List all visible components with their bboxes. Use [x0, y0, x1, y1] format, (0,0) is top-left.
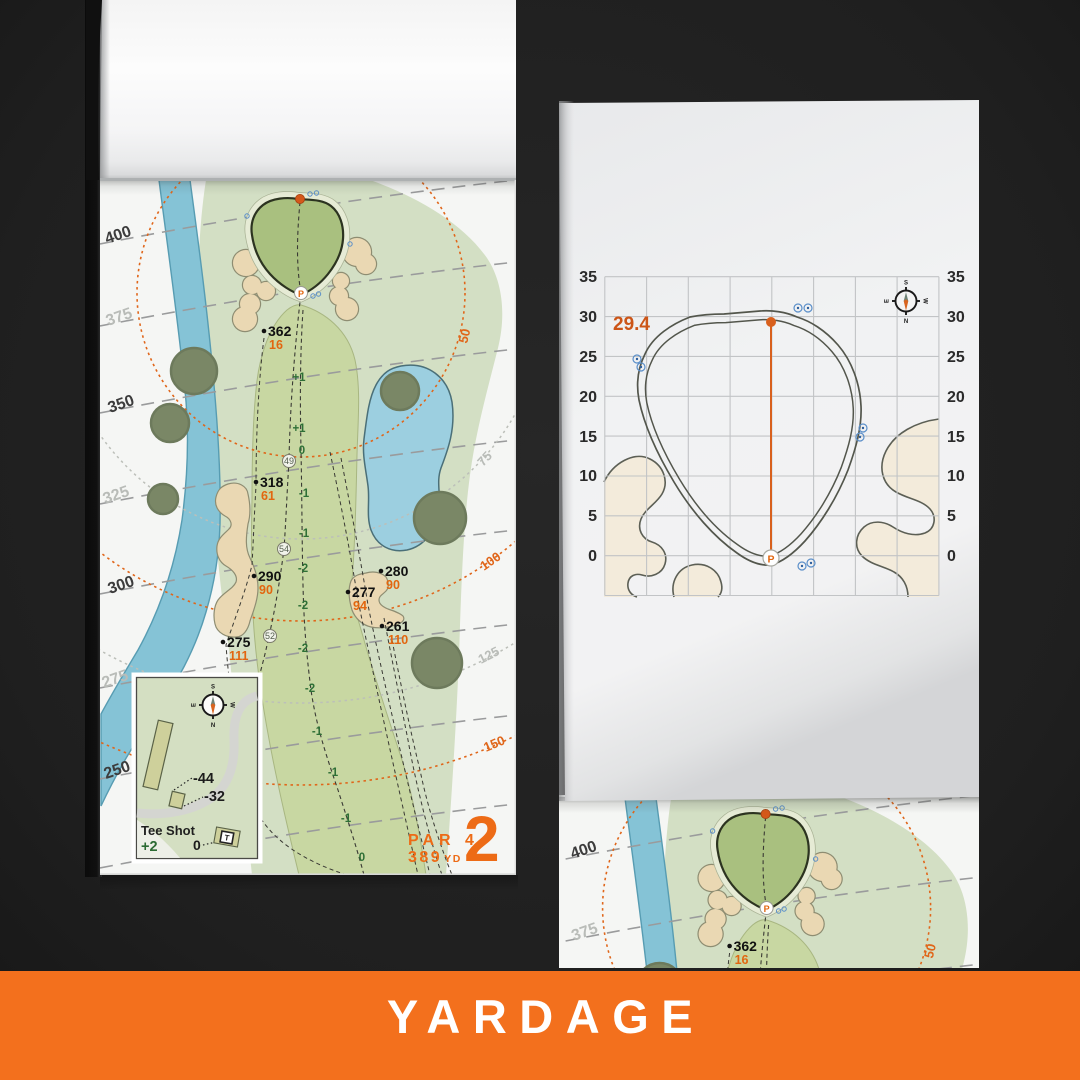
svg-text:E: E [885, 299, 891, 303]
svg-text:35: 35 [579, 269, 597, 286]
svg-text:5: 5 [588, 508, 597, 525]
svg-text:20: 20 [947, 389, 965, 406]
svg-text:15: 15 [947, 429, 965, 446]
svg-text:25: 25 [947, 349, 965, 366]
svg-text:5: 5 [947, 508, 956, 525]
svg-text:0: 0 [947, 548, 956, 565]
svg-text:YARDAGE: YARDAGE [387, 990, 705, 1043]
svg-text:29.4: 29.4 [613, 314, 650, 335]
svg-text:S: S [904, 281, 908, 287]
svg-text:30: 30 [947, 309, 965, 326]
svg-text:15: 15 [579, 429, 597, 446]
svg-text:0: 0 [588, 548, 597, 565]
svg-text:W: W [922, 298, 928, 304]
svg-text:25: 25 [579, 349, 597, 366]
svg-text:30: 30 [579, 309, 597, 326]
svg-text:10: 10 [947, 468, 965, 485]
svg-text:20: 20 [579, 389, 597, 406]
svg-text:10: 10 [579, 468, 597, 485]
svg-text:P: P [767, 554, 774, 566]
svg-text:35: 35 [947, 269, 965, 286]
svg-text:N: N [904, 319, 908, 325]
